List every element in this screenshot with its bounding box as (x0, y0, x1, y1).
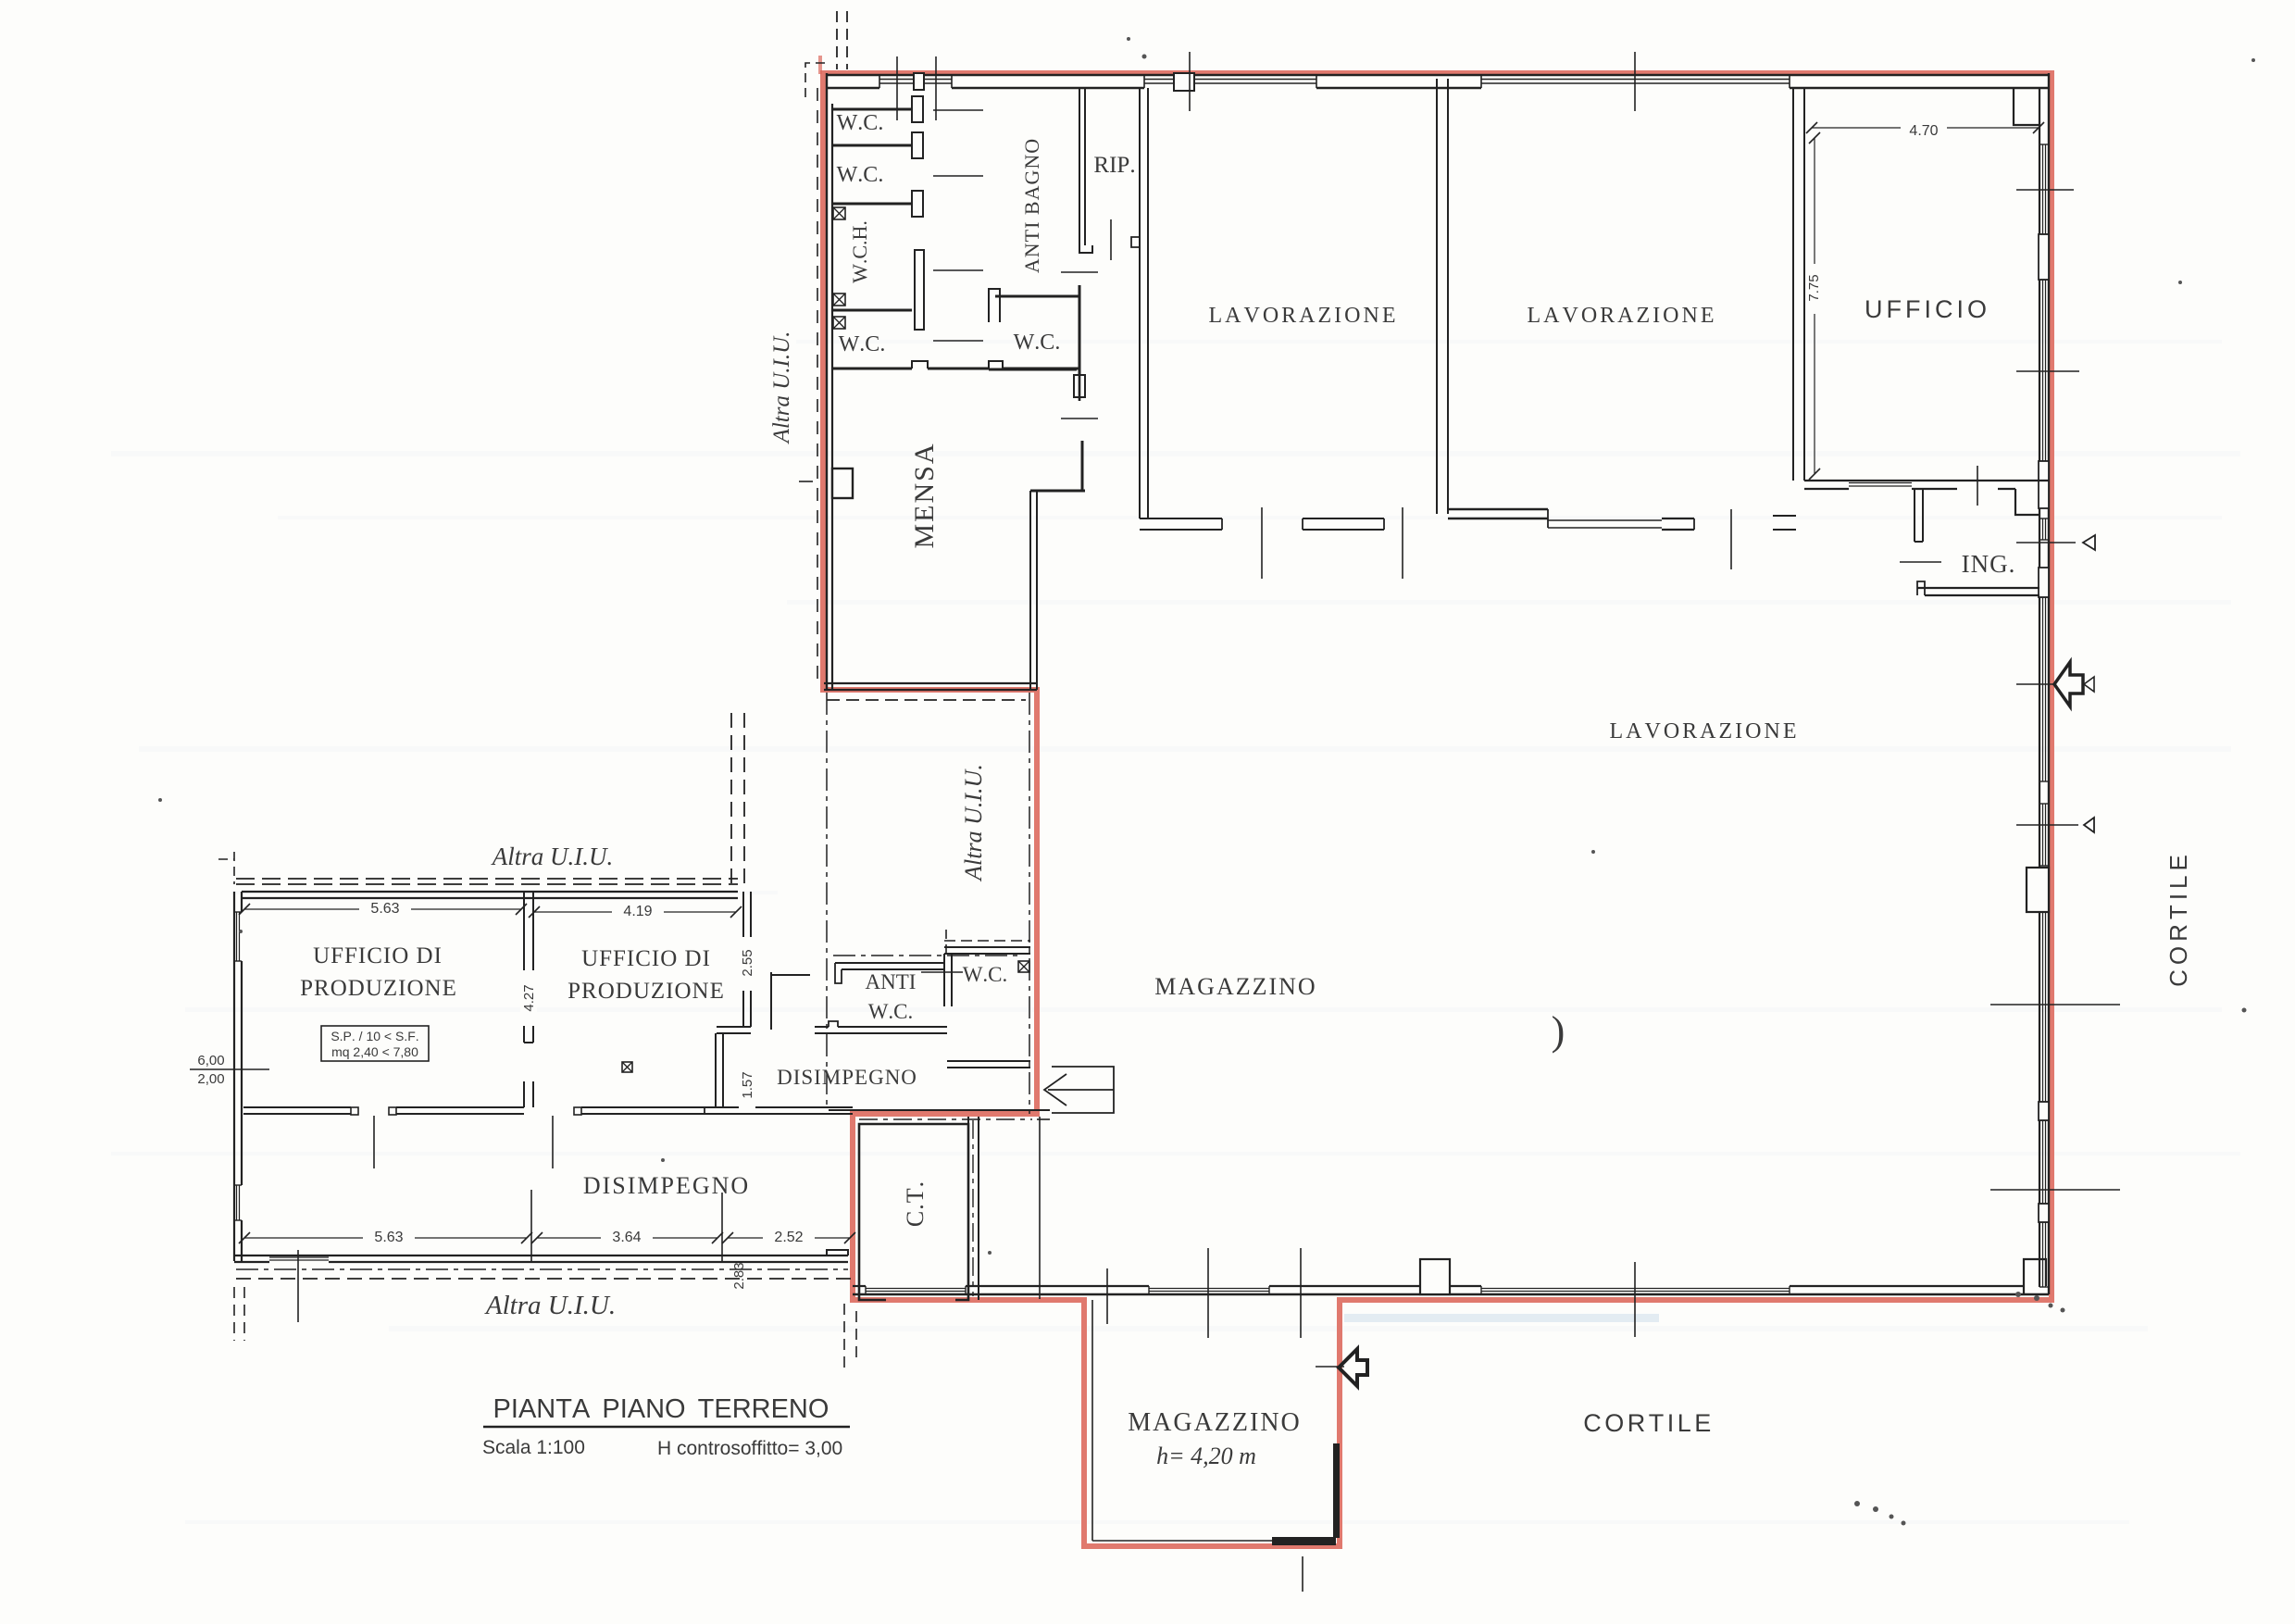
svg-text:mq 2,40 < 7,80: mq 2,40 < 7,80 (331, 1044, 418, 1059)
svg-text:Altra U.I.U.: Altra U.I.U. (484, 1291, 616, 1320)
svg-text:Altra U.I.U.: Altra U.I.U. (960, 764, 987, 882)
svg-text:7.75: 7.75 (1806, 274, 1822, 301)
svg-text:W.C.H.: W.C.H. (848, 220, 871, 283)
svg-text:UFFICIO DI: UFFICIO DI (313, 943, 443, 968)
svg-text:C.T.: C.T. (902, 1181, 929, 1227)
svg-text:UFFICIO: UFFICIO (1865, 295, 1990, 323)
svg-text:2,00: 2,00 (197, 1071, 224, 1087)
svg-text:UFFICIO DI: UFFICIO DI (581, 946, 711, 971)
svg-text:PIANTA PIANO TERRENO: PIANTA PIANO TERRENO (493, 1394, 829, 1424)
svg-text:S.P. / 10 < S.F.: S.P. / 10 < S.F. (331, 1029, 418, 1043)
svg-text:2.83: 2.83 (731, 1262, 747, 1289)
svg-text:MENSA: MENSA (909, 442, 940, 548)
svg-text:1.57: 1.57 (740, 1071, 755, 1098)
svg-text:2.52: 2.52 (774, 1230, 803, 1245)
svg-text:W.C.: W.C. (837, 163, 884, 187)
svg-text:4.27: 4.27 (521, 984, 537, 1011)
svg-text:Scala 1:100: Scala 1:100 (482, 1437, 585, 1458)
svg-text:W.C.: W.C. (1014, 331, 1061, 355)
svg-text:h= 4,20 m: h= 4,20 m (1156, 1443, 1256, 1469)
svg-text:H controsoffitto= 3,00: H controsoffitto= 3,00 (657, 1438, 842, 1459)
svg-text:Altra U.I.U.: Altra U.I.U. (769, 331, 794, 445)
svg-text:ANTI: ANTI (866, 970, 917, 993)
svg-text:DISIMPEGNO: DISIMPEGNO (583, 1172, 750, 1199)
svg-text:4.70: 4.70 (1909, 123, 1938, 139)
svg-text:LAVORAZIONE: LAVORAZIONE (1610, 719, 1800, 743)
svg-text:MAGAZZINO: MAGAZZINO (1154, 973, 1316, 1000)
svg-text:MAGAZZINO: MAGAZZINO (1128, 1408, 1302, 1437)
svg-text:5.63: 5.63 (374, 1230, 403, 1245)
svg-text:W.C.: W.C. (963, 963, 1008, 986)
svg-text:2.55: 2.55 (740, 949, 755, 976)
svg-text:W.C.: W.C. (868, 1000, 914, 1023)
svg-text:RIP.: RIP. (1093, 153, 1135, 178)
svg-text:ANTI BAGNO: ANTI BAGNO (1020, 138, 1043, 273)
svg-text:W.C.: W.C. (839, 332, 886, 356)
svg-text:W.C.: W.C. (837, 111, 884, 135)
svg-text:CORTILE: CORTILE (2164, 850, 2192, 987)
svg-text:3.64: 3.64 (612, 1230, 641, 1245)
svg-text:PRODUZIONE: PRODUZIONE (300, 976, 457, 1001)
svg-text:5.63: 5.63 (370, 901, 399, 917)
svg-text:4.19: 4.19 (623, 904, 652, 919)
svg-text:): ) (1552, 1008, 1565, 1054)
svg-text:6,00: 6,00 (197, 1053, 224, 1068)
svg-text:LAVORAZIONE: LAVORAZIONE (1209, 304, 1399, 328)
svg-text:ING.: ING. (1962, 550, 2016, 578)
svg-text:LAVORAZIONE: LAVORAZIONE (1528, 304, 1717, 328)
svg-text:Altra U.I.U.: Altra U.I.U. (491, 843, 614, 870)
svg-text:DISIMPEGNO: DISIMPEGNO (777, 1066, 917, 1089)
svg-text:PRODUZIONE: PRODUZIONE (568, 979, 725, 1004)
svg-text:CORTILE: CORTILE (1583, 1409, 1715, 1437)
